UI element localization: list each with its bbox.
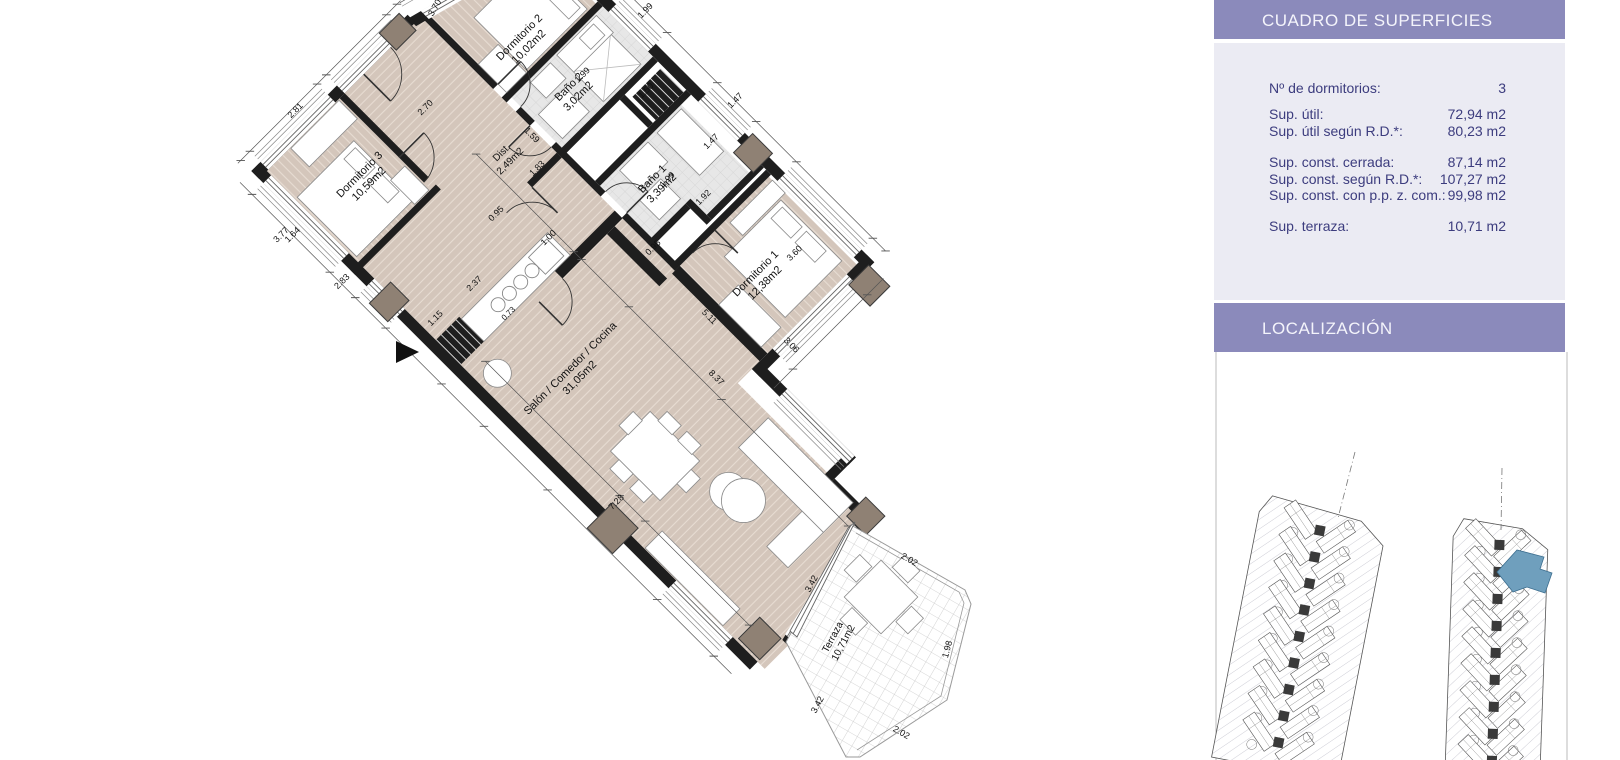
svg-text:99,98 m2: 99,98 m2 bbox=[1448, 187, 1507, 203]
svg-text:Sup. const. con p.p. z. com.:: Sup. const. con p.p. z. com.: bbox=[1269, 187, 1446, 203]
svg-text:Sup. terraza:: Sup. terraza: bbox=[1269, 218, 1349, 234]
svg-text:CUADRO DE SUPERFICIES: CUADRO DE SUPERFICIES bbox=[1262, 11, 1493, 30]
svg-text:3: 3 bbox=[1498, 80, 1506, 96]
svg-text:Sup. const. cerrada:: Sup. const. cerrada: bbox=[1269, 154, 1394, 170]
svg-text:LOCALIZACIÓN: LOCALIZACIÓN bbox=[1262, 319, 1393, 338]
svg-text:10,71 m2: 10,71 m2 bbox=[1448, 218, 1507, 234]
svg-text:107,27 m2: 107,27 m2 bbox=[1440, 171, 1506, 187]
svg-text:80,23 m2: 80,23 m2 bbox=[1448, 123, 1507, 139]
svg-text:Sup. útil:: Sup. útil: bbox=[1269, 106, 1323, 122]
svg-text:Sup. const. según R.D.*:: Sup. const. según R.D.*: bbox=[1269, 171, 1422, 187]
svg-text:87,14 m2: 87,14 m2 bbox=[1448, 154, 1507, 170]
svg-text:Nº de dormitorios:: Nº de dormitorios: bbox=[1269, 80, 1381, 96]
svg-text:Sup. útil según R.D.*:: Sup. útil según R.D.*: bbox=[1269, 123, 1403, 139]
svg-text:72,94 m2: 72,94 m2 bbox=[1448, 106, 1507, 122]
